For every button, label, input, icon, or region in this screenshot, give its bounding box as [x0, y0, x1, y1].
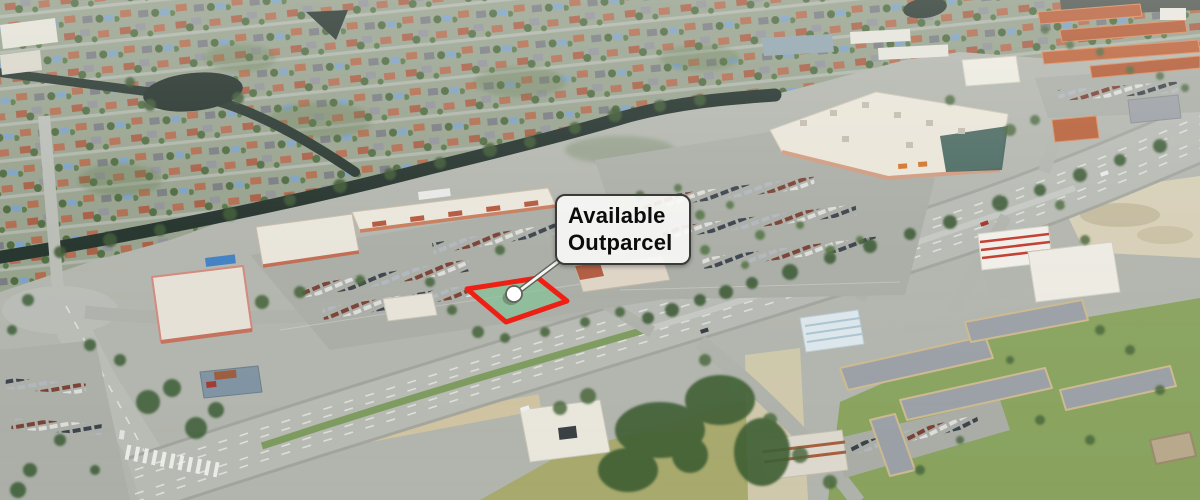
- parcel-marker-dot: [506, 286, 522, 302]
- aerial-map-view: Available Outparcel: [0, 0, 1200, 500]
- callout-line-1: Available: [568, 202, 678, 229]
- available-outparcel-callout: Available Outparcel: [555, 194, 691, 265]
- callout-line-2: Outparcel: [568, 229, 678, 256]
